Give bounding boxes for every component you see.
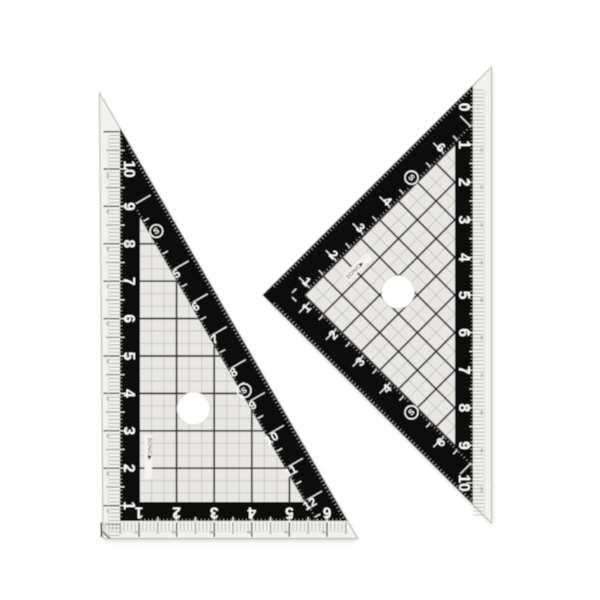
svg-text:50: 50 [284,531,288,535]
svg-text:7: 7 [455,366,472,375]
svg-text:60: 60 [480,336,484,340]
svg-text:SONiC▶: SONiC▶ [146,438,152,461]
svg-text:10: 10 [120,160,137,177]
svg-text:1: 1 [120,501,137,510]
svg-text:6: 6 [322,504,331,521]
svg-text:6: 6 [455,328,472,337]
svg-text:2: 2 [455,178,472,187]
svg-text:60: 60 [106,322,110,326]
svg-text:50: 50 [106,359,110,363]
svg-text:60: 60 [322,531,326,535]
svg-text:80: 80 [106,247,110,251]
svg-text:30: 30 [209,531,213,535]
svg-text:2: 2 [120,464,137,473]
svg-text:90: 90 [106,209,110,213]
svg-text:100: 100 [106,172,110,178]
svg-text:9: 9 [455,441,472,450]
svg-text:8: 8 [120,239,137,248]
svg-text:40: 40 [247,531,251,535]
svg-text:3: 3 [455,215,472,224]
svg-text:9: 9 [120,202,137,211]
svg-text:50: 50 [480,298,484,302]
svg-text:10: 10 [106,509,110,513]
svg-text:20: 20 [480,185,484,189]
svg-text:30: 30 [106,434,110,438]
svg-text:1: 1 [134,504,143,521]
svg-text:70: 70 [480,373,484,377]
svg-text:20: 20 [171,531,175,535]
svg-text:7: 7 [120,277,137,286]
svg-text:5: 5 [455,291,472,300]
svg-text:6: 6 [120,314,137,323]
svg-text:4: 4 [120,389,137,398]
svg-text:3: 3 [120,426,137,435]
svg-text:20: 20 [106,471,110,475]
svg-text:5: 5 [120,352,137,361]
svg-text:40: 40 [480,260,484,264]
svg-text:1: 1 [455,140,472,149]
svg-text:10: 10 [480,148,484,152]
svg-text:40: 40 [106,396,110,400]
svg-text:90: 90 [480,448,484,452]
svg-text:4: 4 [247,504,256,521]
svg-text:30: 30 [480,223,484,227]
svg-text:100: 100 [480,486,484,492]
svg-text:8: 8 [455,403,472,412]
svg-text:80: 80 [480,411,484,415]
svg-text:10: 10 [455,474,472,491]
svg-text:10: 10 [134,531,138,535]
svg-text:2: 2 [172,504,181,521]
svg-text:4: 4 [455,253,472,262]
svg-text:70: 70 [106,284,110,288]
svg-text:3: 3 [210,504,219,521]
svg-text:5: 5 [285,504,294,521]
